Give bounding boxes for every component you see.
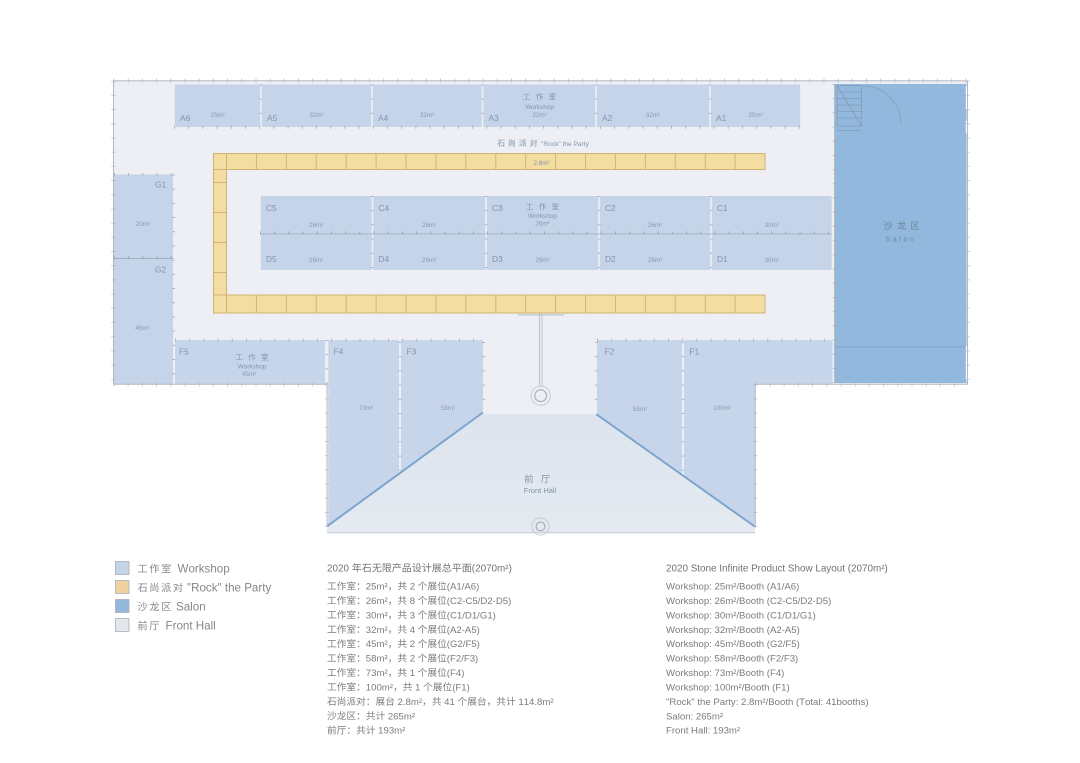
svg-text:45m²: 45m²	[242, 371, 256, 378]
svg-text:1: 1	[412, 682, 423, 693]
svg-text:D1: D1	[717, 254, 728, 264]
svg-text:C3: C3	[492, 203, 503, 213]
svg-text:26m²: 26m²	[535, 221, 549, 228]
svg-text:(A1/A6): (A1/A6)	[447, 582, 480, 593]
svg-text:2020 Stone Infinite Product Sh: 2020 Stone Infinite Product Show Layout …	[666, 564, 888, 575]
svg-text:C2: C2	[605, 203, 616, 213]
svg-text:25m²: 25m²	[366, 582, 389, 593]
svg-text:45m²: 45m²	[135, 325, 149, 332]
svg-text:Front Hall: Front Hall	[524, 486, 557, 495]
svg-text:2.8m²: 2.8m²	[533, 160, 549, 167]
svg-text:"Rock" the Party: "Rock" the Party	[187, 582, 271, 595]
svg-text:(G2/F5): (G2/F5)	[447, 639, 480, 650]
svg-text:2020: 2020	[327, 564, 352, 575]
svg-text:26m²: 26m²	[309, 222, 323, 229]
svg-text:Workshop: 26m²/Booth (C2-C5/D2: Workshop: 26m²/Booth (C2-C5/D2-D5)	[666, 596, 831, 607]
svg-text:A4: A4	[378, 113, 389, 123]
svg-text:32m²: 32m²	[420, 112, 434, 119]
svg-text:2: 2	[407, 654, 418, 665]
svg-text:73m²: 73m²	[359, 405, 373, 412]
svg-text:8: 8	[407, 596, 418, 607]
svg-text:26m²: 26m²	[422, 222, 436, 229]
svg-text:Workshop: 32m²/Booth (A2-A5): Workshop: 32m²/Booth (A2-A5)	[666, 625, 800, 636]
svg-text:F3: F3	[407, 347, 417, 357]
svg-text:26m²: 26m²	[535, 257, 549, 264]
svg-text:193m²: 193m²	[376, 726, 407, 737]
svg-text:Workshop: 45m²/Booth (G2/F5): Workshop: 45m²/Booth (G2/F5)	[666, 639, 800, 650]
svg-text:100m²: 100m²	[713, 405, 731, 412]
svg-text:25m²: 25m²	[210, 112, 224, 119]
svg-text:30m²: 30m²	[765, 257, 779, 264]
svg-text:D3: D3	[492, 254, 503, 264]
svg-text:58m²: 58m²	[366, 654, 389, 665]
svg-text:41: 41	[442, 697, 458, 708]
svg-text:3: 3	[407, 610, 418, 621]
svg-text:26m²: 26m²	[648, 257, 662, 264]
svg-text:Workshop: 100m²/Booth (F1): Workshop: 100m²/Booth (F1)	[666, 682, 790, 693]
svg-text:265m²: 265m²	[385, 711, 416, 722]
svg-text:A2: A2	[602, 113, 613, 123]
svg-text:32m²: 32m²	[646, 112, 660, 119]
svg-text:26m²: 26m²	[422, 257, 436, 264]
svg-text:73m²: 73m²	[366, 668, 389, 679]
svg-text:45m²: 45m²	[366, 639, 389, 650]
svg-text:D5: D5	[266, 254, 277, 264]
svg-text:1: 1	[407, 668, 418, 679]
svg-text:2: 2	[407, 582, 418, 593]
svg-text:A1: A1	[716, 113, 727, 123]
svg-text:30m²: 30m²	[366, 610, 389, 621]
svg-text:C1: C1	[717, 203, 728, 213]
svg-text:"Rock" the Party: "Rock" the Party	[541, 141, 590, 148]
svg-text:C5: C5	[266, 203, 277, 213]
svg-text:114.8m²: 114.8m²	[516, 697, 555, 708]
svg-text:F2: F2	[605, 347, 615, 357]
svg-text:Workshop: Workshop	[238, 364, 267, 371]
svg-text:25m²: 25m²	[748, 112, 762, 119]
svg-text:30m²: 30m²	[765, 222, 779, 229]
svg-text:32m²: 32m²	[309, 112, 323, 119]
svg-text:2.8m²: 2.8m²	[395, 697, 423, 708]
svg-text:2: 2	[407, 639, 418, 650]
svg-text:32m²: 32m²	[532, 112, 546, 119]
svg-text:F4: F4	[334, 347, 344, 357]
svg-text:(A2-A5): (A2-A5)	[447, 625, 480, 636]
svg-text:"Rock" the Party: 2.8m²/Booth: "Rock" the Party: 2.8m²/Booth (Total: 41…	[666, 697, 869, 708]
svg-text:(F1): (F1)	[452, 682, 470, 693]
svg-text:Salon: Salon	[176, 601, 206, 614]
svg-text:58m²: 58m²	[633, 406, 647, 413]
svg-text:(C2-C5/D2-D5): (C2-C5/D2-D5)	[447, 596, 512, 607]
svg-text:32m²: 32m²	[366, 625, 389, 636]
svg-text:Workshop: 25m²/Booth (A1/A6): Workshop: 25m²/Booth (A1/A6)	[666, 582, 799, 593]
svg-text:Workshop: 73m²/Booth (F4): Workshop: 73m²/Booth (F4)	[666, 668, 784, 679]
svg-text:58m²: 58m²	[441, 405, 455, 412]
svg-text:F1: F1	[690, 347, 700, 357]
svg-text:(2070m²): (2070m²)	[472, 564, 512, 575]
svg-text:Salon: 265m²: Salon: 265m²	[666, 711, 724, 722]
svg-text:26m²: 26m²	[366, 596, 389, 607]
svg-text:Front Hall: 193m²: Front Hall: 193m²	[666, 726, 741, 737]
svg-text:20m²: 20m²	[136, 221, 150, 228]
svg-text:Workshop: Workshop	[525, 104, 554, 111]
svg-text:Workshop: 30m²/Booth (C1/D1/G1: Workshop: 30m²/Booth (C1/D1/G1)	[666, 610, 816, 621]
svg-text:100m²: 100m²	[366, 682, 394, 693]
svg-text:A5: A5	[267, 113, 278, 123]
svg-text:F5: F5	[179, 347, 189, 357]
svg-text:Workshop: 58m²/Booth (F2/F3): Workshop: 58m²/Booth (F2/F3)	[666, 654, 798, 665]
svg-text:A3: A3	[489, 113, 500, 123]
svg-text:26m²: 26m²	[648, 222, 662, 229]
svg-text:D4: D4	[379, 254, 390, 264]
svg-text:C4: C4	[379, 203, 390, 213]
svg-text:(C1/D1/G1): (C1/D1/G1)	[447, 610, 496, 621]
svg-text:G2: G2	[155, 265, 167, 275]
svg-text:Front Hall: Front Hall	[166, 620, 216, 633]
svg-text:A6: A6	[180, 113, 191, 123]
svg-text:4: 4	[407, 625, 418, 636]
svg-text:(F2/F3): (F2/F3)	[447, 654, 478, 665]
svg-text:Workshop: Workshop	[178, 563, 230, 576]
svg-text:26m²: 26m²	[309, 257, 323, 264]
svg-text:D2: D2	[605, 254, 616, 264]
svg-text:Salon: Salon	[886, 237, 917, 244]
svg-text:(F4): (F4)	[447, 668, 465, 679]
svg-text:G1: G1	[155, 180, 167, 190]
svg-text:Workshop: Workshop	[528, 213, 557, 220]
